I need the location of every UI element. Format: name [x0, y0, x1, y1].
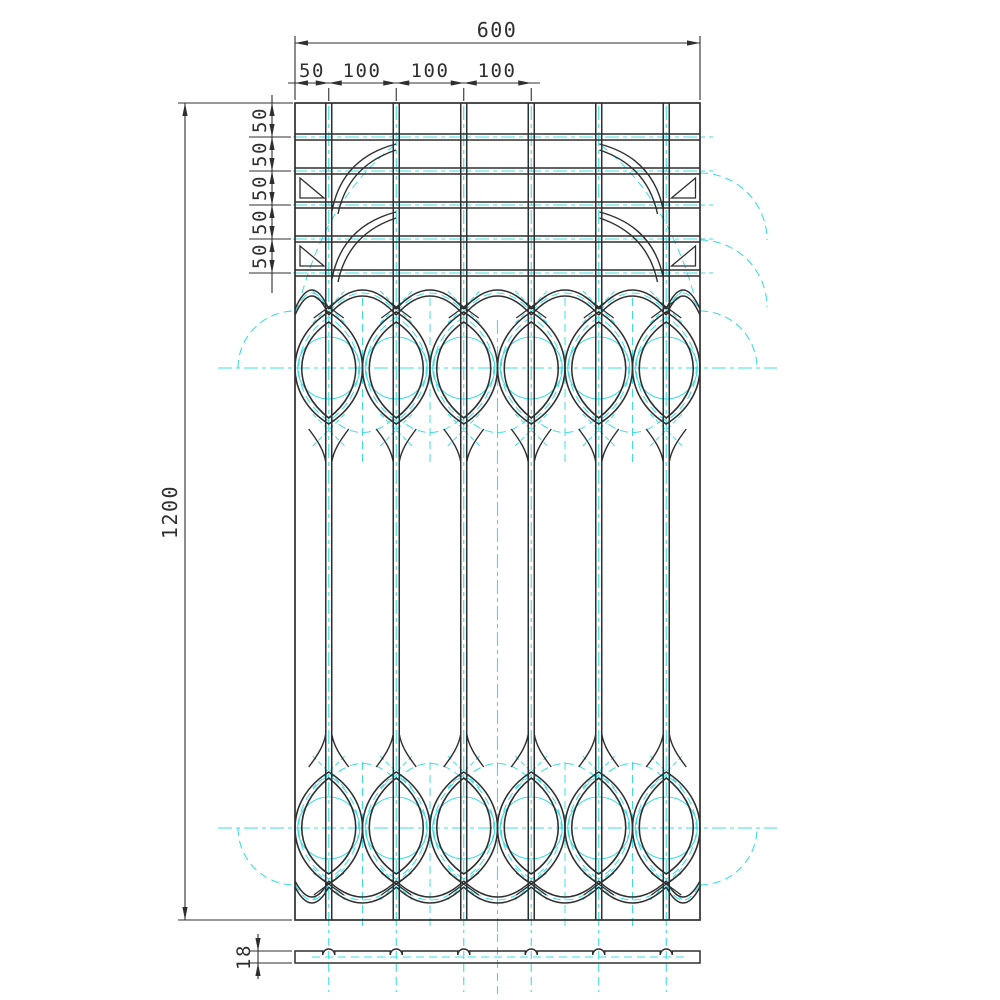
dim-left-chain-label-3: 50	[249, 175, 271, 201]
dim-left-chain-label-4: 50	[249, 209, 271, 235]
dim-overall-width-label: 600	[477, 18, 518, 42]
grille-panel-technical-drawing: 600 50 100 100 100 50 50 50 50 50 1200 1…	[0, 0, 1000, 1000]
dim-top-chain-label-2: 100	[343, 60, 382, 82]
cad-drawing-canvas: 600 50 100 100 100 50 50 50 50 50 1200 1…	[0, 0, 1000, 1000]
dim-top-chain-label-3: 100	[411, 60, 450, 82]
dim-left-chain-label-2: 50	[249, 141, 271, 167]
dim-top-chain-label-4: 100	[478, 60, 517, 82]
dim-overall-height-label: 1200	[158, 485, 182, 539]
dim-left-chain-label-5: 50	[249, 243, 271, 269]
dim-top-chain-label-1: 50	[299, 60, 325, 82]
dim-thickness-label: 18	[233, 944, 255, 970]
dim-left-chain-label-1: 50	[249, 107, 271, 133]
construction-centerlines-layer	[218, 106, 777, 997]
